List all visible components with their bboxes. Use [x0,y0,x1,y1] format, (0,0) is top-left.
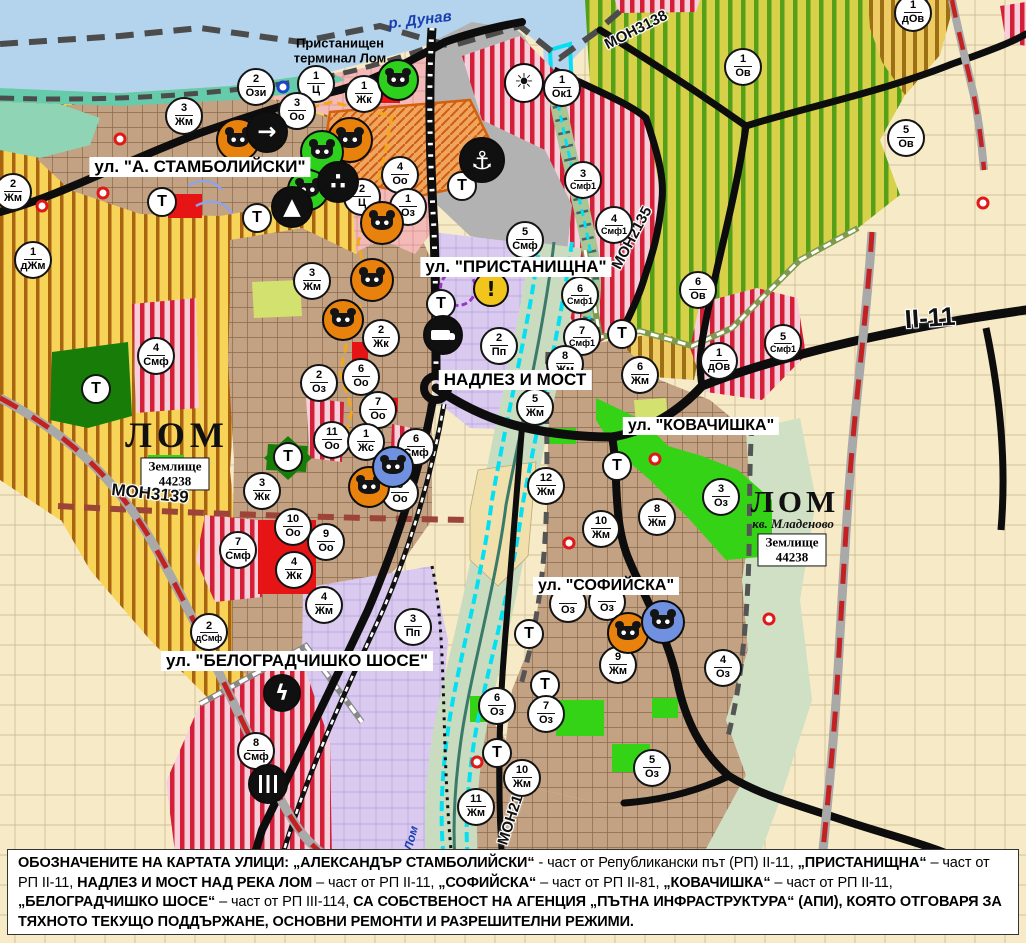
zone-badge: 3Оз [702,478,740,516]
zone-badge: 2Пп [480,327,518,365]
port-anchor-icon: ⚓ [459,137,505,183]
street-label: ул. "СОФИЙСКА" [533,577,679,595]
transport-badge: Т [81,374,111,404]
zone-badge: 11Оо [313,421,351,459]
zone-badge: 6Жм [621,356,659,394]
people-monument-icon: ∴ [317,161,359,203]
zone-badge: 2дСмф [190,613,228,651]
zone-badge: 12Жм [527,467,565,505]
river-name-label: р. Дунав [387,8,452,33]
zone-badge: 2Оз [300,364,338,402]
zone-badge: 1дЖм [14,241,52,279]
landplot-label: Землище44238 [757,533,826,566]
mound-icon: ▲ [271,186,313,228]
poi-ring [649,453,662,466]
map-caption: ОБОЗНАЧЕНИТЕ НА КАРТАТА УЛИЦИ: „АЛЕКСАНД… [7,849,1019,935]
caption-segment: – част от РП II-11, [312,875,438,891]
caption-segment: „БЕЛОГРАДЧИШКО ШОСЕ“ [18,894,215,910]
street-label: ул. "ПРИСТАНИЩНА" [420,257,611,277]
caption-segment: „СОФИЙСКА“ [438,875,536,891]
zone-badge: 5Жм [516,388,554,426]
map-caption-text: ОБОЗНАЧЕНИТЕ НА КАРТАТА УЛИЦИ: „АЛЕКСАНД… [18,855,1002,930]
zone-badge: 1дОв [894,0,932,32]
power-station-icon: ϟ [263,674,301,712]
zone-badge: 4Жк [275,551,313,589]
road-label: МОН3138 [602,7,671,53]
gate-arrow-icon: → [246,111,288,153]
zone-badge: 6Оз [478,687,516,725]
transport-badge: Т [273,442,303,472]
city-name-label: ЛОМ [125,414,229,456]
zone-badge: 4Жм [305,586,343,624]
caption-segment: „ПРИСТАНИЩНА“ [798,855,927,871]
zone-badge: 5Ов [887,119,925,157]
caption-segment: – част от РП II-81, [536,875,663,891]
railway-station-icon [248,764,288,804]
district-label: кв. Младеново [752,516,834,532]
city-name-label: ЛОМ [751,484,839,520]
zone-badge: 2Ози [237,68,275,106]
transport-badge: Т [514,619,544,649]
zone-badge: 8Жм [638,498,676,536]
poi-ring [563,537,576,550]
zone-badge: 5Смф1 [764,324,802,362]
poi-ring [471,756,484,769]
culture-monument-icon [360,201,404,245]
transport-badge: Т [242,203,272,233]
street-label: ул. "КОВАЧИШКА" [623,417,779,435]
caption-segment: – част от РП III-114, [215,894,353,910]
zone-badge: 10Жм [503,759,541,797]
zone-badge: 3Пп [394,608,432,646]
zone-badge: 11Жм [457,788,495,826]
zone-badge: 2Жк [362,319,400,357]
zone-badge: 7Оз [527,695,565,733]
street-label: НАДЛЕЗ И МОСТ [439,370,592,390]
zoning-map: 2Ози1Ц1Жк3Оо1Ок13Жм2Жм1дЖм3Жм4Оо2Ц1Оз5См… [0,0,1026,943]
zone-badge: 4Смф1 [595,206,633,244]
poi-ring [97,187,110,200]
zone-badge: 2Жм [0,173,32,211]
map-marker-layer: 2Ози1Ц1Жк3Оо1Ок13Жм2Жм1дЖм3Жм4Оо2Ц1Оз5См… [0,0,1026,943]
zone-badge: 1Ов [724,48,762,86]
river-name-label: Лом [401,824,421,851]
zone-badge: 5Смф [506,221,544,259]
culture-monument-icon-blue [372,446,414,488]
transport-badge: Т [607,319,637,349]
poi-ring [277,81,290,94]
caption-segment: – част от РП II-11, [771,875,893,891]
truck-terminal-icon [423,315,463,355]
transport-badge: Т [602,451,632,481]
zone-badge: 4Оз [704,649,742,687]
zone-badge: 5Оз [633,749,671,787]
culture-monument-icon [322,299,364,341]
zone-badge: 9Оо [307,523,345,561]
poi-ring [36,200,49,213]
zone-badge: 10Жм [582,510,620,548]
culture-monument-icon-green [377,59,419,101]
transport-badge: Т [482,738,512,768]
zone-badge: 6Ов [679,271,717,309]
culture-monument-icon [350,258,394,302]
culture-monument-icon-blue [641,600,685,644]
transport-badge: Т [147,187,177,217]
zone-badge: 6Смф1 [561,276,599,314]
caption-segment: - част от Републикански път (РП) II-11, [535,855,798,871]
poi-ring [977,197,990,210]
zone-badge: 3Жк [243,472,281,510]
zone-badge: 3Смф1 [564,161,602,199]
caption-segment: НАДЛЕЗ И МОСТ НАД РЕКА ЛОМ [77,875,312,891]
zone-badge: 3Жм [293,262,331,300]
caption-segment: ОБОЗНАЧЕНИТЕ НА КАРТАТА УЛИЦИ: „АЛЕКСАНД… [18,855,535,871]
harbor-crane-icon: ☀ [504,63,544,103]
poi-ring [114,133,127,146]
street-label: ул. "А. СТАМБОЛИЙСКИ" [89,157,310,177]
port-terminal-label: Пристанищентерминал Лом [294,36,386,67]
zone-badge: 4Смф [137,337,175,375]
road-label: II-11 [904,301,957,335]
zone-badge: 1дОв [700,342,738,380]
poi-ring [763,613,776,626]
zone-badge: 3Жм [165,97,203,135]
caption-segment: „КОВАЧИШКА“ [663,875,770,891]
street-label: ул. "БЕЛОГРАДЧИШКО ШОСЕ" [161,651,433,671]
zone-badge: 7Смф [219,531,257,569]
zone-badge: 1Ок1 [543,69,581,107]
